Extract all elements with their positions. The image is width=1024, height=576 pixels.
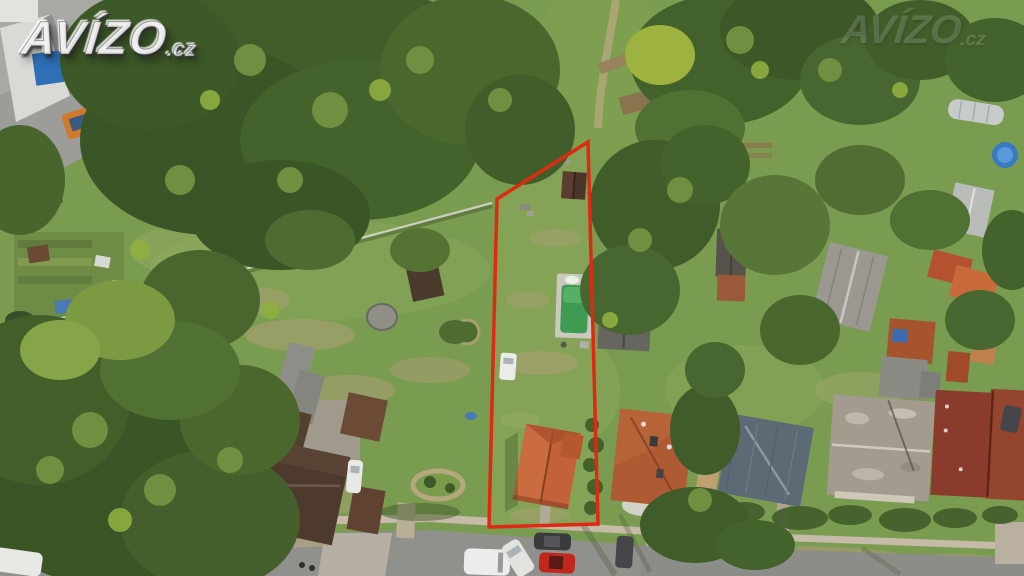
garden-circle	[413, 471, 463, 499]
round-tank	[367, 304, 397, 330]
listed-parcel	[489, 142, 604, 527]
dark-car-vertical	[615, 535, 634, 568]
garden-shed	[561, 171, 587, 200]
dark-car	[534, 532, 572, 550]
barn-roof	[340, 392, 388, 441]
blue-tarp	[892, 328, 908, 342]
parcel-car-white	[499, 352, 517, 380]
aerial-photo: AVÍZO.cz AVÍZO.cz	[0, 0, 1024, 576]
corner-watermark-tld: .cz	[959, 29, 987, 50]
corner-watermark-text: AVÍZO	[840, 8, 964, 52]
red-car	[539, 552, 576, 574]
weathered-roof-house	[826, 395, 935, 505]
corner-watermark: AVÍZO.cz	[840, 8, 989, 53]
driveway	[995, 522, 1024, 564]
pedestrian	[309, 565, 315, 571]
avizo-logo: AVÍZO.cz	[19, 10, 200, 65]
avizo-logo-text: AVÍZO	[19, 11, 170, 64]
parked-car-white	[346, 459, 364, 493]
aerial-photo-canvas	[0, 0, 1024, 576]
avizo-logo-tld: .cz	[166, 36, 198, 61]
small-red-shed	[946, 351, 971, 383]
dark-red-roof-houses	[930, 386, 1024, 501]
pedestrian	[299, 562, 305, 568]
garden-cabin	[27, 245, 50, 264]
